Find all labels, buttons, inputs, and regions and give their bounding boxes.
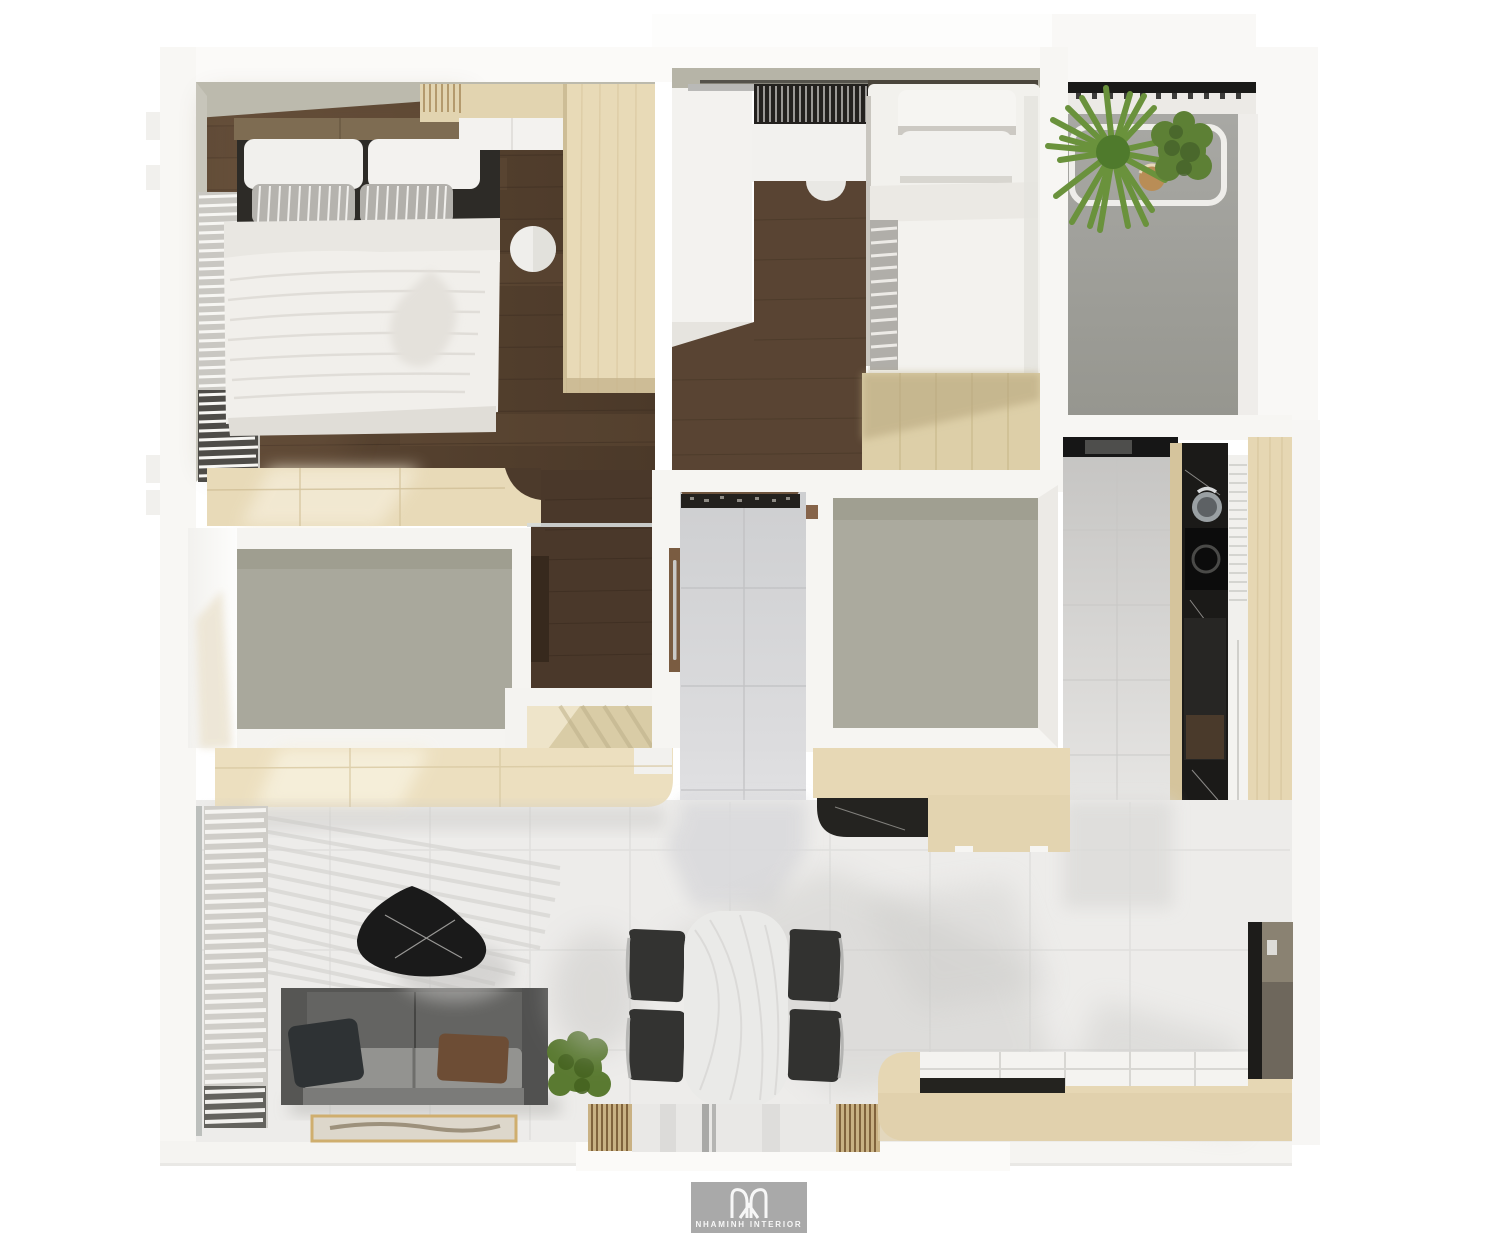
- svg-text:NHAMINH INTERIOR: NHAMINH INTERIOR: [695, 1220, 802, 1229]
